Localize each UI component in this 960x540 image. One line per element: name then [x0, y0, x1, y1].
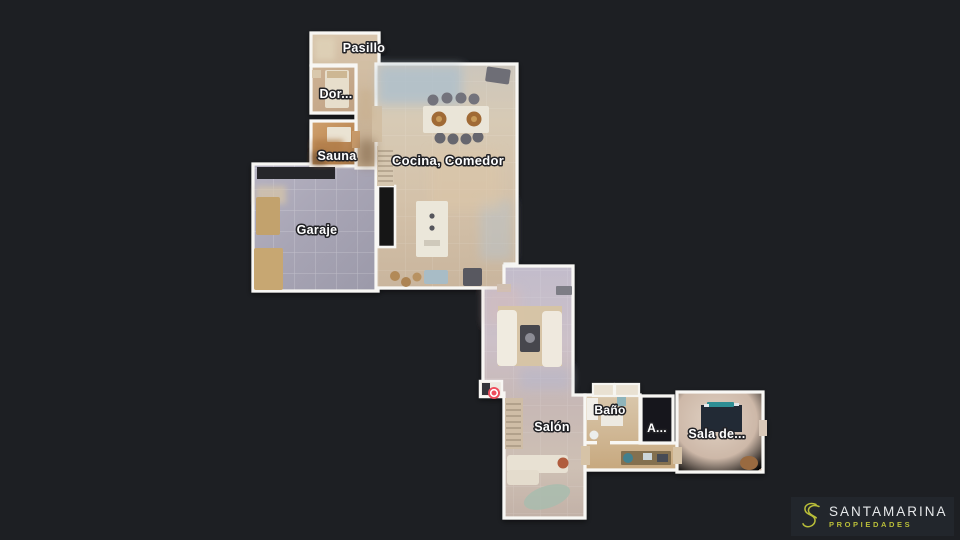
room-label-bano[interactable]: Baño	[594, 403, 625, 417]
room-label-pasillo[interactable]: Pasillo	[343, 41, 385, 55]
floorplan-viewer: Pasillo Dor... Sauna Cocina, Comedor Gar…	[0, 0, 960, 540]
brand-name: SANTAMARINA	[829, 505, 948, 519]
floorplan-canvas[interactable]: Pasillo Dor... Sauna Cocina, Comedor Gar…	[0, 0, 960, 540]
brand-s-icon	[800, 501, 822, 532]
brand-text: SANTAMARINA PROPIEDADES	[829, 505, 948, 529]
bano-cabinet-a	[593, 384, 614, 396]
room-label-salon[interactable]: Salón	[534, 420, 570, 434]
room-label-garaje[interactable]: Garaje	[297, 223, 338, 237]
room-label-sauna[interactable]: Sauna	[317, 149, 357, 163]
room-label-cocina-comedor[interactable]: Cocina, Comedor	[392, 153, 504, 168]
brand-tagline: PROPIEDADES	[829, 521, 948, 529]
room-label-a[interactable]: A...	[647, 421, 667, 435]
room-a[interactable]	[641, 396, 673, 443]
bano-cabinet-b	[615, 384, 639, 396]
room-label-sala-de[interactable]: Sala de...	[688, 427, 745, 441]
room-label-dormitorio[interactable]: Dor...	[319, 87, 352, 101]
cocina-void	[378, 186, 395, 247]
brand-logo-plate: SANTAMARINA PROPIEDADES	[791, 497, 954, 536]
current-position-marker	[488, 387, 500, 399]
